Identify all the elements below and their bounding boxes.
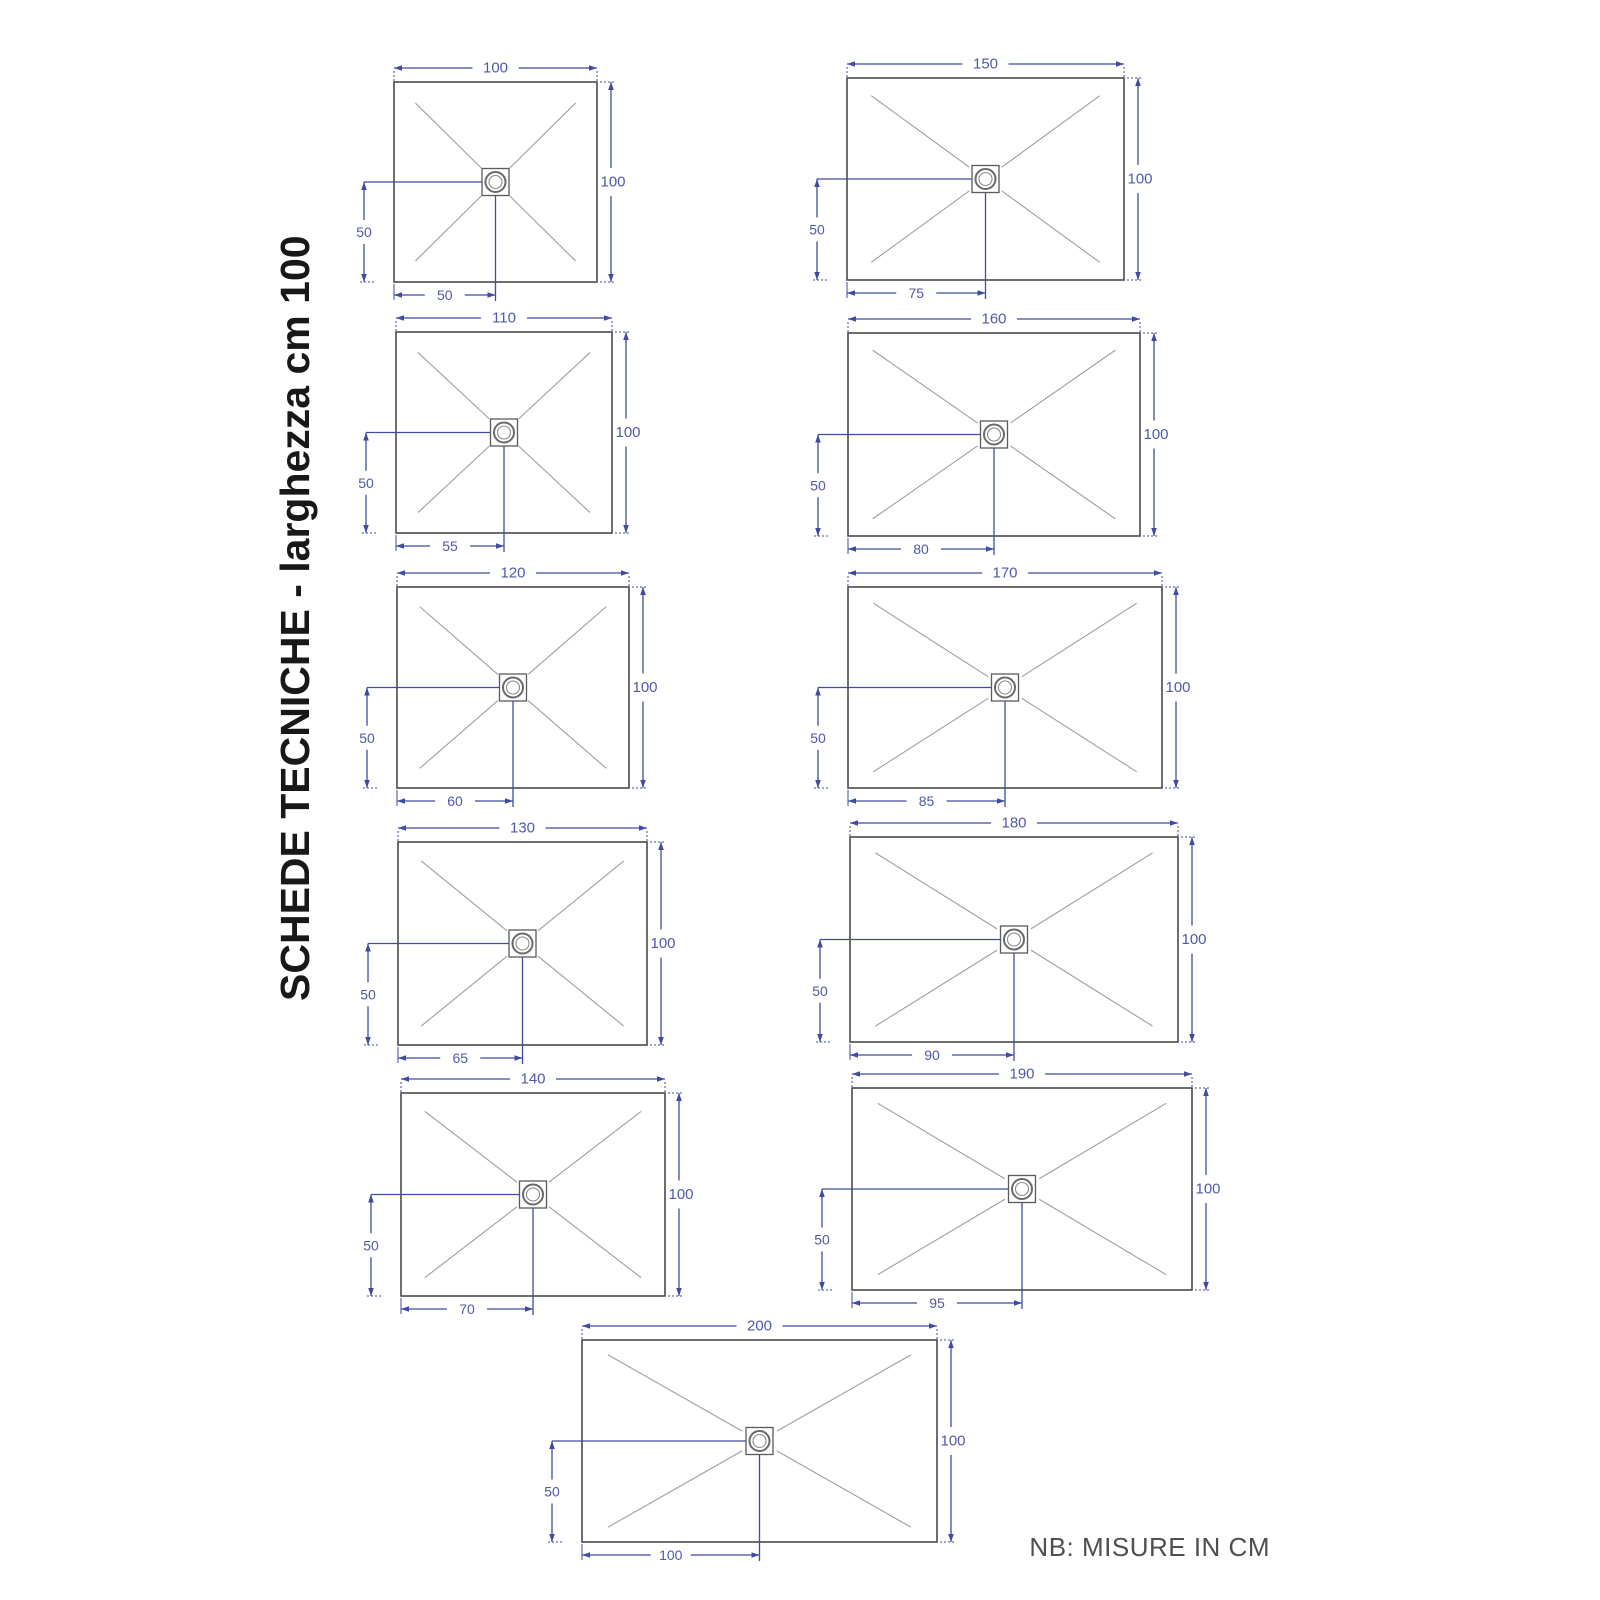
drain-icon [482,169,509,196]
svg-text:100: 100 [940,1433,965,1450]
svg-text:100: 100 [1195,1181,1220,1198]
svg-text:85: 85 [919,793,935,809]
svg-text:170: 170 [992,565,1017,582]
svg-text:110: 110 [492,310,516,327]
technical-sheet-page: SCHEDE TECNICHE - larghezza cm 100 10010… [0,0,1600,1600]
svg-text:70: 70 [459,1301,475,1317]
svg-text:50: 50 [814,1232,830,1248]
svg-text:50: 50 [810,730,826,746]
svg-text:50: 50 [810,477,826,493]
drain-icon [1001,926,1028,953]
svg-text:100: 100 [615,424,640,441]
svg-text:75: 75 [908,285,924,301]
svg-text:160: 160 [981,311,1006,328]
svg-text:100: 100 [1181,931,1206,948]
tray-drawing-100: 1001005050 [356,60,625,304]
svg-text:100: 100 [632,679,657,696]
drain-icon [1009,1176,1036,1203]
svg-text:95: 95 [929,1295,945,1311]
svg-text:50: 50 [363,1237,379,1253]
svg-text:140: 140 [520,1071,545,1088]
svg-text:190: 190 [1009,1066,1034,1083]
svg-text:100: 100 [650,935,675,952]
svg-text:100: 100 [600,174,625,191]
tray-drawings-canvas: 1001005050110100505512010050601301005065… [0,0,1600,1600]
drain-icon [491,419,518,446]
svg-text:50: 50 [358,475,374,491]
svg-text:50: 50 [544,1484,560,1500]
tray-drawing-110: 1101005055 [358,310,640,555]
svg-text:90: 90 [924,1047,940,1063]
tray-drawing-200: 20010050100 [544,1318,965,1564]
svg-text:130: 130 [510,820,535,837]
drain-icon [746,1428,773,1455]
svg-text:180: 180 [1001,815,1026,832]
svg-text:50: 50 [360,986,376,1002]
svg-text:100: 100 [1127,171,1152,188]
svg-text:120: 120 [500,565,525,582]
drain-icon [509,930,536,957]
svg-text:100: 100 [1143,426,1168,443]
svg-text:55: 55 [442,538,458,554]
page-title: SCHEDE TECNICHE - larghezza cm 100 [272,281,318,1001]
tray-drawing-120: 1201005060 [359,565,657,810]
svg-text:60: 60 [447,793,463,809]
svg-text:150: 150 [973,56,998,73]
tray-drawing-160: 1601005080 [810,311,1168,558]
svg-text:50: 50 [356,224,372,240]
svg-text:200: 200 [747,1318,772,1335]
units-note: NB: MISURE IN CM [960,1532,1270,1563]
drain-icon [981,421,1008,448]
svg-text:80: 80 [913,541,929,557]
drain-icon [972,166,999,193]
drain-icon [992,674,1019,701]
tray-drawing-130: 1301005065 [360,820,675,1067]
svg-text:50: 50 [812,983,828,999]
drain-icon [500,674,527,701]
svg-text:50: 50 [809,222,825,238]
tray-drawing-150: 1501005075 [809,56,1152,302]
svg-text:100: 100 [659,1547,683,1563]
svg-text:100: 100 [483,60,508,77]
tray-drawing-140: 1401005070 [363,1071,693,1318]
svg-text:50: 50 [359,730,375,746]
tray-drawing-170: 1701005085 [810,565,1190,810]
svg-text:100: 100 [668,1186,693,1203]
svg-text:100: 100 [1165,679,1190,696]
tray-drawing-180: 1801005090 [812,815,1206,1064]
drain-icon [520,1181,547,1208]
svg-text:50: 50 [437,287,453,303]
svg-text:65: 65 [452,1050,468,1066]
tray-drawing-190: 1901005095 [814,1066,1220,1312]
